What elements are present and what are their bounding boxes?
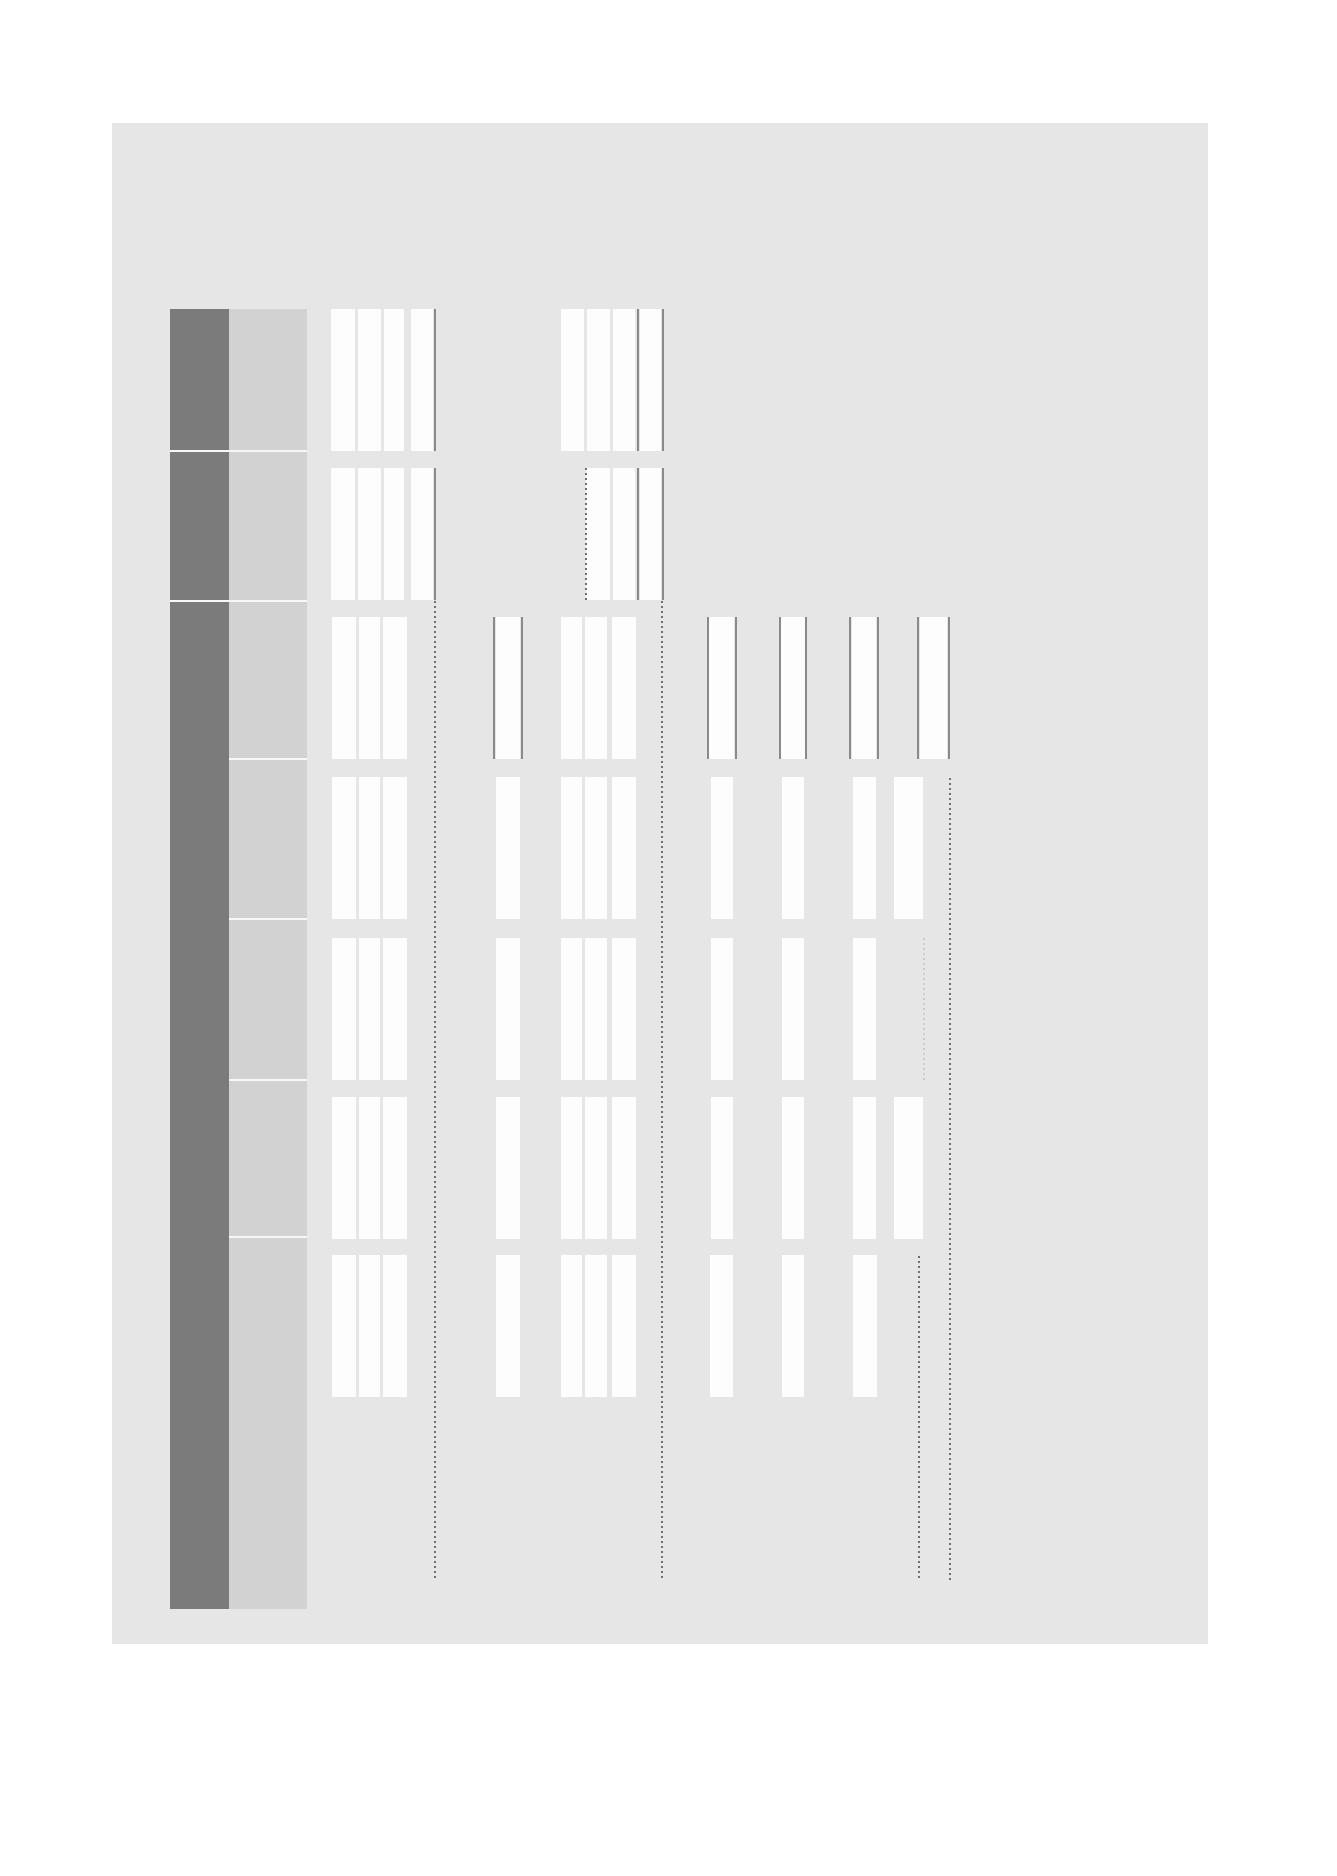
table-cell-bar: [359, 777, 380, 919]
table-cell-bar: [920, 617, 947, 759]
table-cell-bar: [496, 938, 520, 1080]
table-cell-bar: [359, 1097, 380, 1239]
table-cell-bar: [384, 309, 404, 451]
table-border-line: [948, 617, 950, 759]
table-cell-bar: [411, 309, 433, 451]
dotted-guide-line: [434, 601, 436, 1580]
table-border-line: [779, 617, 781, 759]
header-row-separator: [229, 918, 307, 920]
table-cell-bar: [332, 1255, 356, 1397]
table-cell-bar: [496, 777, 520, 919]
table-border-line: [662, 468, 664, 600]
table-cell-bar: [586, 468, 610, 600]
header-row-separator: [170, 450, 229, 452]
table-cell-bar: [585, 617, 607, 759]
table-cell-bar: [585, 777, 607, 919]
table-cell-bar: [332, 1097, 356, 1239]
table-border-line: [434, 309, 436, 451]
table-cell-bar: [585, 938, 607, 1080]
table-cell-bar: [711, 1097, 733, 1239]
table-border-line: [917, 617, 919, 759]
header-row-separator: [229, 450, 307, 452]
table-cell-bar: [853, 1255, 877, 1397]
table-border-line: [662, 309, 664, 451]
table-border-line: [434, 468, 436, 600]
table-cell-bar: [561, 777, 582, 919]
dotted-guide-line: [923, 938, 925, 1080]
table-border-line: [805, 617, 807, 759]
table-cell-bar: [331, 309, 355, 451]
table-cell-bar: [782, 777, 804, 919]
header-row-separator: [229, 758, 307, 760]
table-border-line: [493, 617, 495, 759]
table-cell-bar: [332, 777, 356, 919]
table-header-column-light: [229, 309, 307, 1609]
table-border-line: [877, 617, 879, 759]
table-cell-bar: [561, 938, 582, 1080]
table-cell-bar: [383, 1255, 407, 1397]
table-cell-bar: [332, 938, 356, 1080]
table-cell-bar: [782, 938, 804, 1080]
table-border-line: [637, 468, 639, 600]
table-cell-bar: [711, 777, 733, 919]
dotted-guide-line: [949, 778, 951, 1580]
header-row-separator: [229, 1236, 307, 1238]
table-cell-bar: [853, 777, 876, 919]
table-border-line: [637, 309, 639, 451]
table-cell-bar: [612, 938, 636, 1080]
table-cell-bar: [358, 468, 381, 600]
table-cell-bar: [709, 617, 734, 759]
table-cell-bar: [411, 468, 433, 600]
table-cell-bar: [613, 468, 635, 600]
table-cell-bar: [383, 1097, 407, 1239]
table-cell-bar: [612, 1097, 636, 1239]
table-cell-bar: [383, 777, 407, 919]
header-row-separator: [170, 600, 229, 602]
table-cell-bar: [781, 617, 805, 759]
table-cell-bar: [612, 1255, 636, 1397]
table-cell-bar: [561, 309, 584, 451]
table-cell-bar: [383, 938, 407, 1080]
table-cell-bar: [332, 617, 356, 759]
table-cell-bar: [561, 617, 582, 759]
table-cell-bar: [561, 1255, 582, 1397]
table-cell-bar: [640, 468, 661, 600]
table-cell-bar: [853, 938, 876, 1080]
table-cell-bar: [587, 309, 610, 451]
table-border-line: [707, 617, 709, 759]
table-cell-bar: [612, 777, 636, 919]
table-cell-bar: [710, 1255, 733, 1397]
table-border-line: [849, 617, 851, 759]
table-border-line: [735, 617, 737, 759]
table-cell-bar: [782, 1255, 804, 1397]
table-cell-bar: [585, 1097, 607, 1239]
header-row-separator: [229, 600, 307, 602]
table-border-line: [521, 617, 523, 759]
table-cell-bar: [496, 1097, 520, 1239]
table-cell-bar: [383, 617, 407, 759]
table-cell-bar: [852, 617, 876, 759]
table-cell-bar: [359, 1255, 380, 1397]
table-cell-bar: [782, 1097, 804, 1239]
table-cell-bar: [384, 468, 404, 600]
dotted-guide-line: [585, 468, 587, 600]
table-cell-bar: [711, 938, 733, 1080]
table-cell-bar: [640, 309, 661, 451]
table-cell-bar: [585, 1255, 607, 1397]
table-cell-bar: [359, 938, 380, 1080]
table-cell-bar: [496, 617, 520, 759]
header-row-separator: [229, 1079, 307, 1081]
table-cell-bar: [496, 1255, 520, 1397]
table-cell-bar: [359, 617, 380, 759]
table-cell-bar: [894, 1097, 923, 1239]
table-cell-bar: [613, 309, 635, 451]
table-header-column-dark: [170, 309, 229, 1609]
document-canvas: [0, 0, 1337, 1876]
dotted-guide-line: [661, 601, 663, 1580]
table-cell-bar: [561, 1097, 582, 1239]
table-cell-bar: [358, 309, 381, 451]
dotted-guide-line: [918, 1256, 920, 1580]
table-cell-bar: [853, 1097, 876, 1239]
table-cell-bar: [612, 617, 636, 759]
table-cell-bar: [331, 468, 355, 600]
table-cell-bar: [894, 777, 923, 919]
